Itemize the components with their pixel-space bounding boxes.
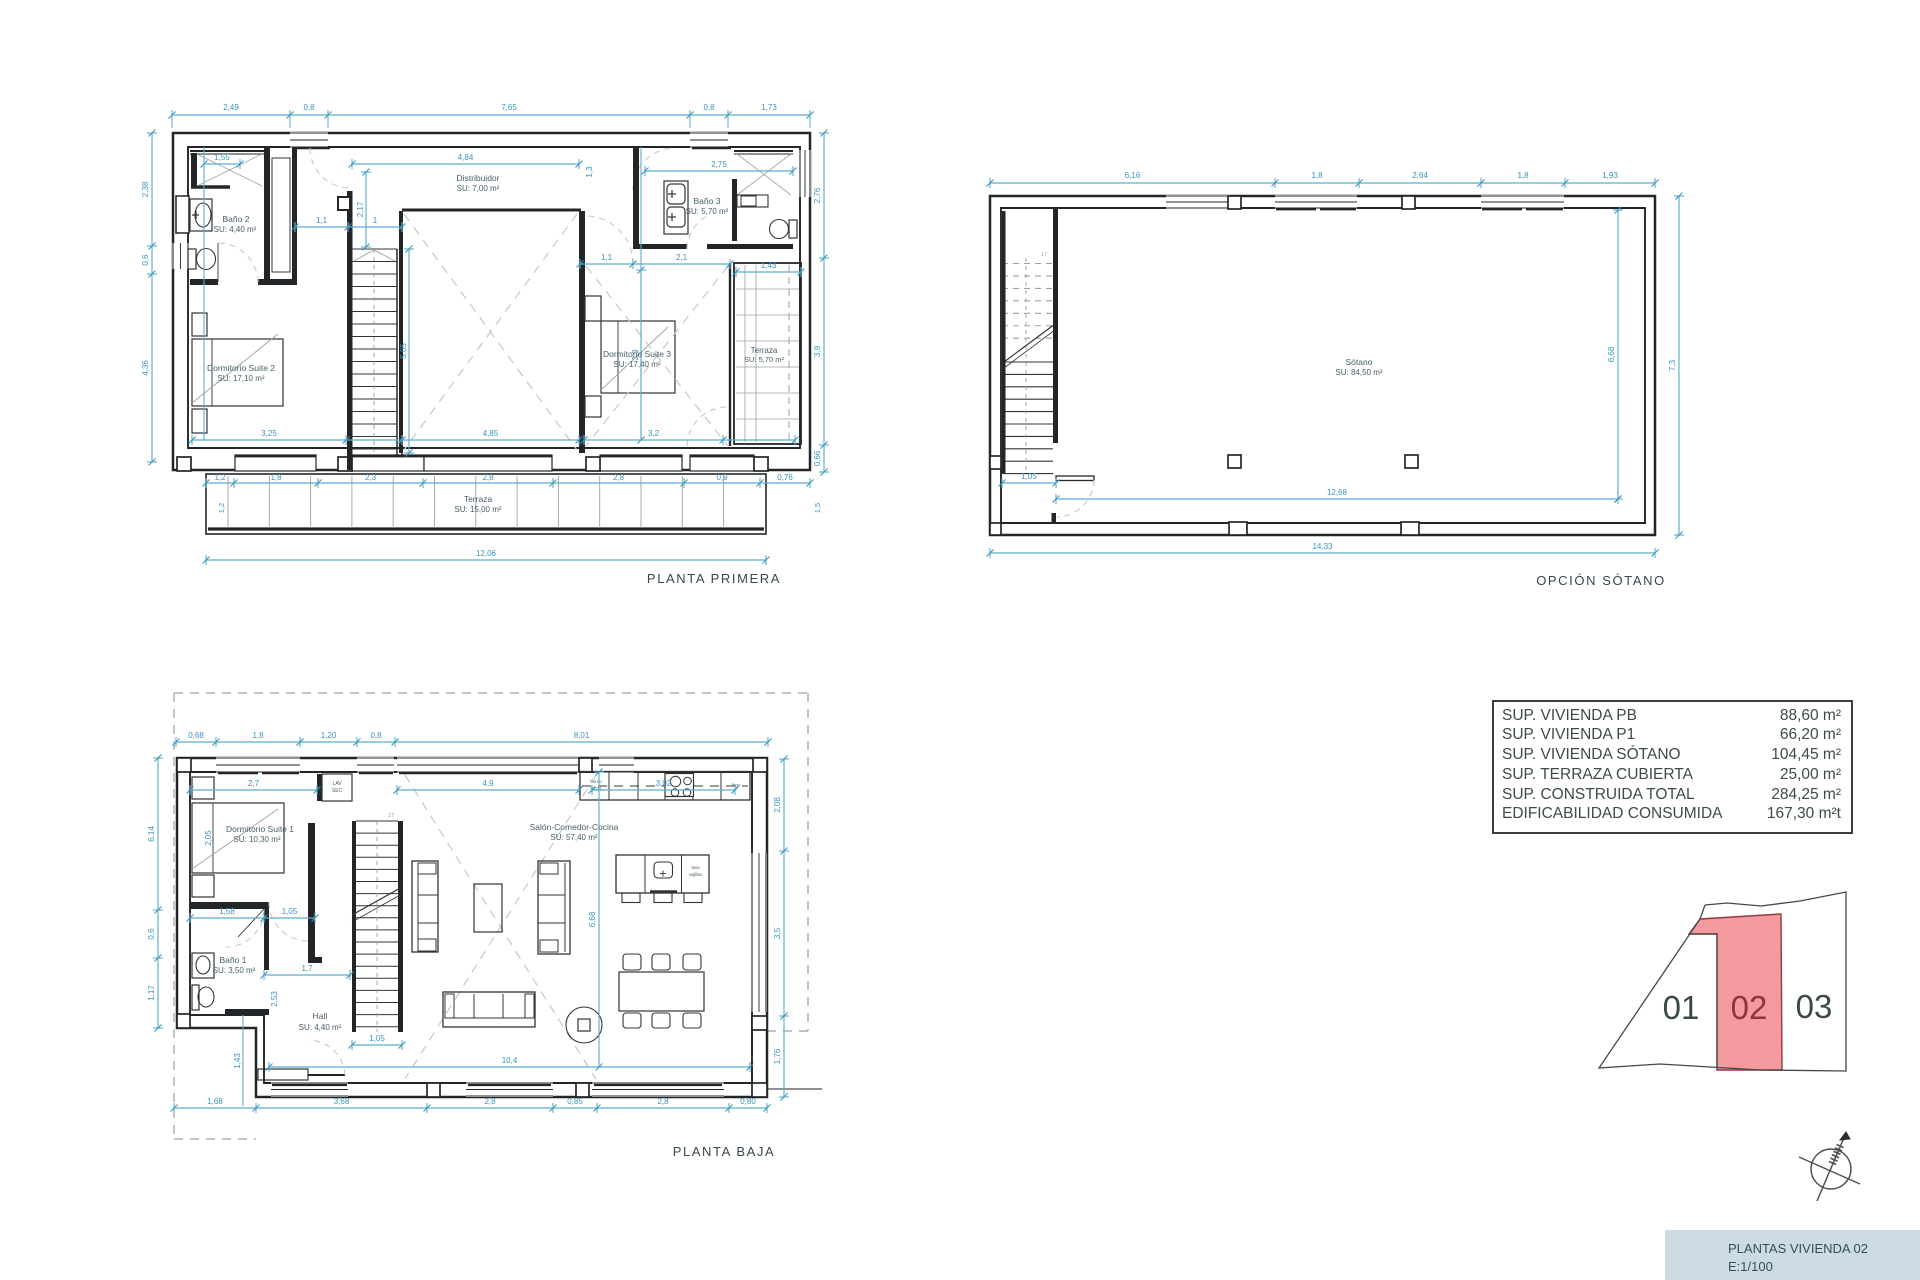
svg-text:vajillas: vajillas (689, 872, 703, 877)
svg-text:Dormitorio Suite 3: Dormitorio Suite 3 (603, 349, 671, 359)
svg-text:1,05: 1,05 (1021, 472, 1037, 481)
svg-text:EDIFICABILIDAD CONSUMIDA: EDIFICABILIDAD CONSUMIDA (1502, 805, 1723, 822)
svg-text:6,68: 6,68 (1607, 346, 1616, 362)
svg-text:SU: 4,40 m²: SU: 4,40 m² (299, 1023, 342, 1032)
svg-text:12,06: 12,06 (476, 549, 497, 558)
svg-text:SUP. CONSTRUIDA TOTAL: SUP. CONSTRUIDA TOTAL (1502, 786, 1695, 803)
svg-text:3,68: 3,68 (334, 1097, 350, 1106)
svg-text:1,5: 1,5 (813, 503, 822, 513)
svg-text:3,5: 3,5 (773, 927, 782, 939)
svg-text:0,76: 0,76 (777, 473, 793, 482)
svg-text:SU: 57,40 m²: SU: 57,40 m² (550, 833, 597, 842)
svg-text:7,65: 7,65 (501, 103, 517, 112)
svg-text:1,7: 1,7 (301, 964, 313, 973)
svg-text:2,7: 2,7 (248, 779, 260, 788)
svg-text:SUP. TERRAZA CUBIERTA: SUP. TERRAZA CUBIERTA (1502, 766, 1694, 783)
svg-text:PLANTA BAJA: PLANTA BAJA (673, 1144, 776, 1159)
svg-text:1,20: 1,20 (321, 731, 337, 740)
svg-text:Dormitorio Suite 1: Dormitorio Suite 1 (226, 824, 294, 834)
svg-text:frigo: frigo (732, 783, 741, 788)
svg-text:02: 02 (1731, 989, 1768, 1026)
svg-text:0,8: 0,8 (703, 103, 715, 112)
svg-text:88,60 m²: 88,60 m² (1780, 707, 1841, 724)
svg-text:0,6: 0,6 (147, 928, 156, 940)
svg-text:4,36: 4,36 (141, 360, 150, 376)
svg-text:SU: 4,40 m²: SU: 4,40 m² (214, 225, 257, 234)
svg-text:Salón-Comedor-Cocina: Salón-Comedor-Cocina (530, 822, 619, 832)
svg-text:OPCIÓN SÓTANO: OPCIÓN SÓTANO (1536, 573, 1666, 588)
svg-text:1: 1 (373, 216, 378, 225)
svg-text:SU: 5,70 m²: SU: 5,70 m² (686, 207, 729, 216)
svg-text:1,1: 1,1 (316, 216, 328, 225)
svg-text:1,2: 1,2 (217, 503, 226, 513)
svg-text:SU: 5,70 m²: SU: 5,70 m² (744, 355, 785, 364)
svg-text:0,80: 0,80 (740, 1097, 756, 1106)
svg-text:2,38: 2,38 (141, 181, 150, 197)
svg-text:4,9: 4,9 (482, 779, 494, 788)
svg-text:2,3: 2,3 (365, 473, 377, 482)
svg-text:8,01: 8,01 (574, 731, 590, 740)
svg-text:SEC: SEC (332, 788, 343, 794)
svg-text:5,05: 5,05 (399, 343, 408, 359)
svg-text:2,75: 2,75 (711, 160, 727, 169)
svg-text:1,2: 1,2 (214, 473, 226, 482)
svg-text:2,49: 2,49 (223, 103, 239, 112)
svg-text:2,76: 2,76 (813, 187, 822, 203)
svg-text:SU: 7,00 m²: SU: 7,00 m² (457, 184, 500, 193)
svg-text:SU: 15,00 m²: SU: 15,00 m² (454, 505, 501, 514)
svg-text:2,64: 2,64 (1412, 171, 1428, 180)
svg-text:Baño 2: Baño 2 (223, 214, 250, 224)
svg-text:2,8: 2,8 (613, 473, 625, 482)
svg-text:6,16: 6,16 (1125, 171, 1141, 180)
svg-text:7,3: 7,3 (1668, 359, 1677, 371)
svg-text:17: 17 (1041, 252, 1047, 258)
svg-text:1,8: 1,8 (1517, 171, 1529, 180)
svg-text:SUP. VIVIENDA P1: SUP. VIVIENDA P1 (1502, 726, 1635, 743)
svg-text:14,33: 14,33 (1312, 542, 1333, 551)
svg-text:104,45 m²: 104,45 m² (1771, 746, 1841, 763)
svg-text:Baño 1: Baño 1 (220, 955, 247, 965)
svg-text:1,8: 1,8 (252, 731, 264, 740)
svg-text:Baño 3: Baño 3 (694, 196, 721, 206)
svg-text:1,3: 1,3 (585, 166, 594, 178)
svg-text:2,8: 2,8 (657, 1097, 669, 1106)
svg-text:SU: 84,50 m²: SU: 84,50 m² (1335, 368, 1382, 377)
svg-text:2,17: 2,17 (356, 201, 365, 217)
svg-text:10,4: 10,4 (502, 1056, 518, 1065)
svg-text:01: 01 (1663, 989, 1700, 1026)
svg-text:66,20 m²: 66,20 m² (1780, 726, 1841, 743)
svg-text:PLANTAS VIVIENDA 02: PLANTAS VIVIENDA 02 (1728, 1241, 1868, 1256)
svg-text:Sótano: Sótano (1346, 357, 1373, 367)
svg-text:1,8: 1,8 (270, 473, 282, 482)
svg-text:0,9: 0,9 (716, 473, 728, 482)
svg-text:0,66: 0,66 (813, 450, 822, 466)
svg-text:1,17: 1,17 (147, 985, 156, 1001)
svg-text:2,53: 2,53 (270, 991, 279, 1007)
svg-text:0,85: 0,85 (567, 1097, 583, 1106)
svg-text:Hall: Hall (313, 1011, 328, 1021)
svg-text:1,8: 1,8 (1311, 171, 1323, 180)
svg-text:Dormitorio Suite 2: Dormitorio Suite 2 (207, 363, 275, 373)
svg-text:SU: 17,10 m²: SU: 17,10 m² (217, 374, 264, 383)
svg-text:0,68: 0,68 (188, 731, 204, 740)
svg-text:2,08: 2,08 (773, 797, 782, 813)
svg-text:Terraza: Terraza (751, 346, 778, 355)
svg-text:SU: 17,40 m²: SU: 17,40 m² (613, 360, 660, 369)
svg-text:SUP. VIVIENDA PB: SUP. VIVIENDA PB (1502, 707, 1637, 724)
svg-text:2,8: 2,8 (482, 473, 494, 482)
svg-text:2,8: 2,8 (484, 1097, 496, 1106)
svg-text:1,55: 1,55 (214, 153, 230, 162)
svg-text:6,14: 6,14 (147, 826, 156, 842)
svg-text:167,30 m²t: 167,30 m²t (1767, 805, 1842, 822)
svg-text:lava: lava (691, 865, 700, 870)
svg-text:3,25: 3,25 (261, 429, 277, 438)
svg-text:1,05: 1,05 (369, 1034, 385, 1043)
svg-text:1,73: 1,73 (761, 103, 777, 112)
svg-text:0,8: 0,8 (303, 103, 315, 112)
svg-text:2,05: 2,05 (204, 830, 213, 846)
svg-text:SUP. VIVIENDA SÓTANO: SUP. VIVIENDA SÓTANO (1502, 746, 1681, 763)
svg-text:4,84: 4,84 (458, 153, 474, 162)
svg-text:Distribuidor: Distribuidor (457, 173, 500, 183)
svg-text:12,68: 12,68 (1327, 488, 1348, 497)
svg-text:25,00 m²: 25,00 m² (1780, 766, 1841, 783)
svg-text:1,58: 1,58 (219, 907, 235, 916)
svg-text:1,93: 1,93 (1602, 171, 1618, 180)
svg-text:1,1: 1,1 (601, 253, 613, 262)
svg-text:1,43: 1,43 (233, 1053, 242, 1069)
svg-text:3,02: 3,02 (656, 779, 672, 788)
svg-text:17: 17 (388, 813, 394, 819)
svg-text:SU: 10,30 m²: SU: 10,30 m² (233, 835, 280, 844)
svg-text:3,2: 3,2 (648, 429, 660, 438)
svg-text:Terraza: Terraza (464, 494, 493, 504)
svg-text:PLANTA PRIMERA: PLANTA PRIMERA (647, 571, 781, 586)
svg-text:2,1: 2,1 (676, 253, 688, 262)
svg-text:LAV: LAV (332, 781, 342, 787)
svg-text:0,6: 0,6 (141, 254, 150, 266)
svg-text:horno: horno (590, 779, 602, 784)
svg-text:6,68: 6,68 (588, 911, 597, 927)
svg-text:4,85: 4,85 (483, 429, 499, 438)
svg-text:E:1/100: E:1/100 (1728, 1259, 1773, 1274)
svg-text:3,9: 3,9 (813, 345, 822, 357)
svg-text:1,76: 1,76 (773, 1048, 782, 1064)
svg-text:1,68: 1,68 (207, 1097, 223, 1106)
svg-text:1,05: 1,05 (282, 907, 298, 916)
svg-text:0,8: 0,8 (370, 731, 382, 740)
svg-text:SU: 3,50 m²: SU: 3,50 m² (213, 966, 256, 975)
svg-text:284,25 m²: 284,25 m² (1771, 786, 1841, 803)
svg-text:1,43: 1,43 (761, 261, 777, 270)
svg-text:03: 03 (1796, 988, 1833, 1025)
